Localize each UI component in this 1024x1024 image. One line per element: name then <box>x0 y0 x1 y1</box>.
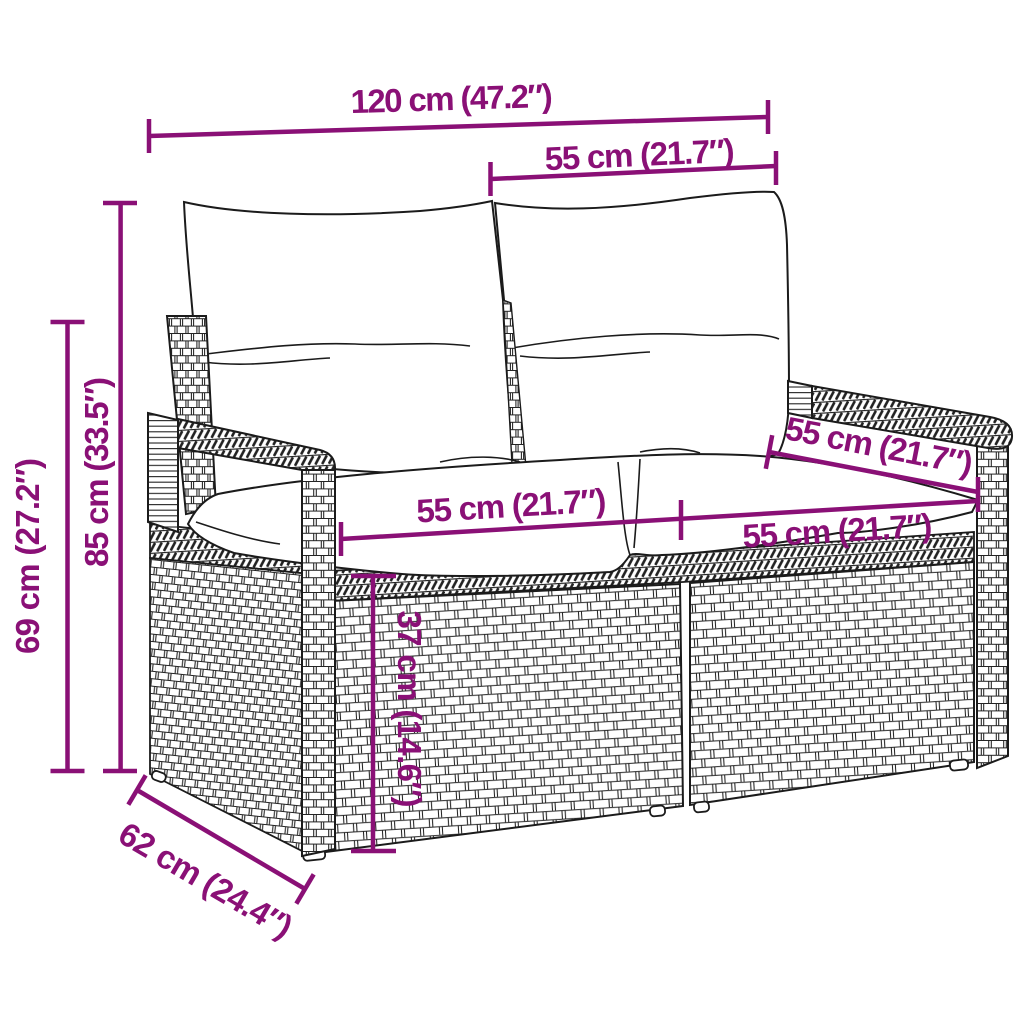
svg-text:120 cm (47.2″): 120 cm (47.2″) <box>350 77 553 120</box>
svg-text:85 cm (33.5″): 85 cm (33.5″) <box>78 377 115 567</box>
svg-text:37 cm (14.6″): 37 cm (14.6″) <box>391 611 428 808</box>
svg-text:69 cm (27.2″): 69 cm (27.2″) <box>9 458 46 654</box>
